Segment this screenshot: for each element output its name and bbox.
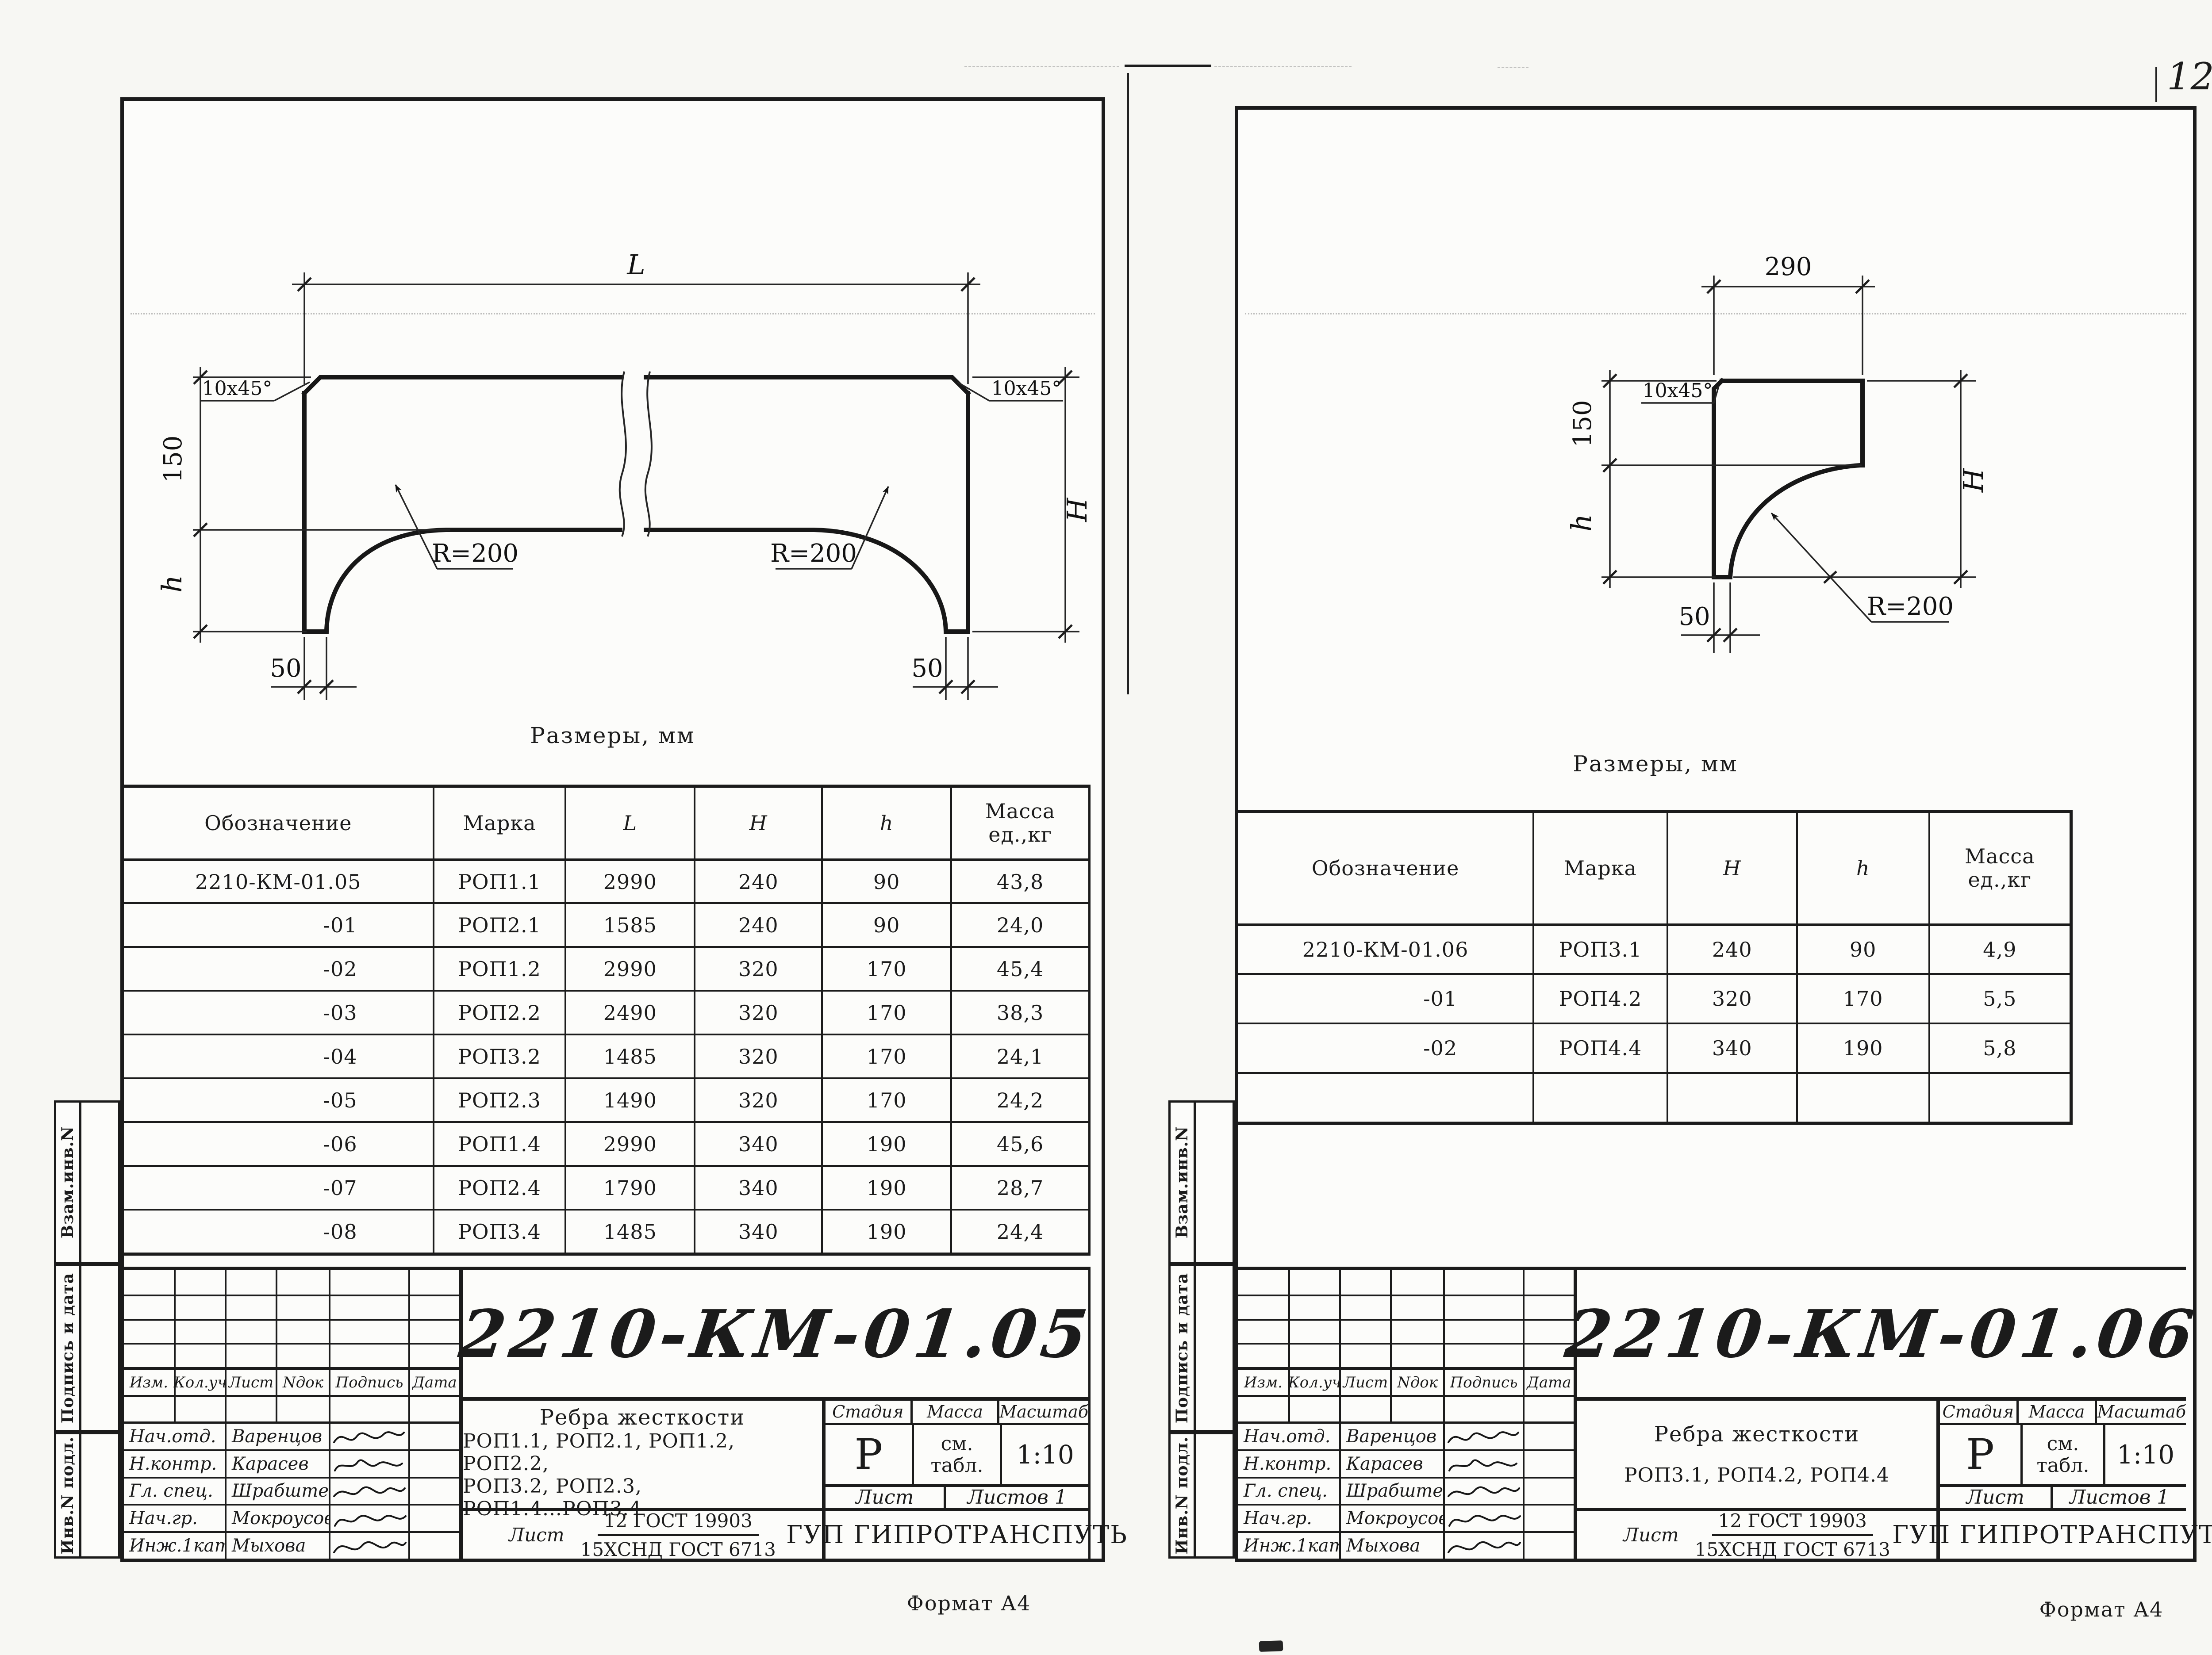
material-spec: 12 ГОСТ 19903 15ХСНД ГОСТ 6713 xyxy=(1695,1510,1890,1560)
cell-mark: РОП3.2 xyxy=(433,1034,565,1077)
cell-empty xyxy=(1796,1072,1928,1122)
sheets-label: Листов 1 xyxy=(2051,1487,2186,1508)
signature xyxy=(1443,1424,1523,1449)
cell-mass: 38,3 xyxy=(950,990,1088,1034)
cell-L: 2990 xyxy=(565,946,694,990)
rib-profile-drawing-left: L 150 h H 50 50 R=200 R=200 10x45° xyxy=(158,251,1087,720)
signature xyxy=(1443,1533,1523,1559)
material-bottom: 15ХСНД ГОСТ 6713 xyxy=(580,1536,776,1560)
break-line xyxy=(645,372,652,536)
material-top: 12 ГОСТ 19903 xyxy=(598,1510,759,1536)
cell-h: 90 xyxy=(1796,923,1928,973)
margin-box-vzam: Взам.инв.N xyxy=(1168,1100,1235,1264)
cell-mark: РОП3.1 xyxy=(1532,923,1667,973)
margin-box-inv: Инв.N подл. xyxy=(54,1432,120,1559)
mass-value: см.табл. xyxy=(912,1425,1000,1484)
doc-title: Ребра жесткости xyxy=(1654,1422,1860,1447)
cell-mass: 28,7 xyxy=(950,1165,1088,1209)
title-block: 2210-КМ-01.05 Ребра жесткости РОП1.1, РО… xyxy=(124,1267,1091,1559)
scan-fold-mark xyxy=(1214,66,1352,67)
radius-label-left: R=200 xyxy=(432,539,518,568)
scan-fold-mark xyxy=(964,66,1119,67)
scan-smudge xyxy=(1259,1640,1283,1652)
cell-designation: -03 xyxy=(124,990,433,1034)
cell-mark: РОП4.2 xyxy=(1532,973,1667,1023)
cell-H: 240 xyxy=(694,902,821,946)
col-header-mark: Марка xyxy=(1532,813,1667,923)
sheet-divider-line xyxy=(1127,73,1129,694)
cell-mark: РОП2.4 xyxy=(433,1165,565,1209)
cell-mass: 45,4 xyxy=(950,946,1088,990)
signature-rows: Нач.отд.Варенцов Н.контр.Карасев Гл. спе… xyxy=(1238,1424,1574,1559)
signature-rows: Нач.отд.Варенцов Н.контр.Карасев Гл. спе… xyxy=(124,1424,459,1559)
scale-value: 1:10 xyxy=(1000,1425,1088,1484)
part-outline xyxy=(1714,381,1863,577)
cell-H: 320 xyxy=(694,1034,821,1077)
margin-box-vzam: Взам.инв.N xyxy=(54,1100,120,1264)
sheet-right: 290 150 h H 50 R=200 10x45° Размеры, мм … xyxy=(1235,106,2197,1562)
sheet-label: Лист xyxy=(1940,1487,2051,1508)
doc-number-box: 2210-КМ-01.05 xyxy=(459,1270,1088,1401)
cell-L: 2490 xyxy=(565,990,694,1034)
col-header-mass: Массаед.,кг xyxy=(1928,813,2070,923)
col-header-H: H xyxy=(694,788,821,858)
cell-designation: -06 xyxy=(124,1121,433,1165)
signature xyxy=(329,1533,408,1559)
signature xyxy=(1443,1506,1523,1531)
dimensions-table: Обозначение Марка L H h Массаед.,кг 2210… xyxy=(124,785,1091,1256)
cell-mass: 24,2 xyxy=(950,1077,1088,1121)
chamfer-label-left: 10x45° xyxy=(202,377,273,400)
col-header-H: H xyxy=(1667,813,1796,923)
cell-H: 340 xyxy=(694,1209,821,1253)
cell-mass: 5,5 xyxy=(1928,973,2070,1023)
dim-length-label: L xyxy=(626,251,645,281)
scanned-drawing-page: { "page": { "number": "12", "format": "Ф… xyxy=(0,0,2212,1655)
title-block: 2210-КМ-01.06 Ребра жесткости РОП3.1, РО… xyxy=(1238,1267,2186,1559)
stage-value: Р xyxy=(826,1425,912,1484)
cell-L: 2990 xyxy=(565,1121,694,1165)
dim-150-label: 150 xyxy=(159,436,188,483)
signature xyxy=(329,1424,408,1449)
cell-h: 190 xyxy=(821,1121,950,1165)
material-bottom: 15ХСНД ГОСТ 6713 xyxy=(1695,1536,1890,1560)
dim-h-label: h xyxy=(1565,514,1598,532)
sheets-label: Листов 1 xyxy=(944,1487,1088,1508)
format-label-left: Формат А4 xyxy=(902,1591,1035,1615)
company-name: ГУП ГИПРОТРАНСПУТЬ xyxy=(786,1521,1128,1549)
cell-mark: РОП1.4 xyxy=(433,1121,565,1165)
cell-mass: 24,0 xyxy=(950,902,1088,946)
cell-h: 190 xyxy=(821,1165,950,1209)
table-caption: Размеры, мм xyxy=(1238,751,2073,777)
revision-empty-row xyxy=(124,1397,459,1424)
doc-number: 2210-КМ-01.06 xyxy=(1561,1295,2202,1372)
chamfer-label: 10x45° xyxy=(1643,379,1713,402)
cell-empty xyxy=(1532,1072,1667,1122)
signature xyxy=(1443,1451,1523,1477)
page-number-tick xyxy=(2155,67,2157,102)
scale-value: 1:10 xyxy=(2103,1425,2186,1484)
col-header-mark: Марка xyxy=(433,788,565,858)
doc-number-box: 2210-КМ-01.06 xyxy=(1574,1270,2186,1401)
cell-h: 170 xyxy=(821,990,950,1034)
dim-foot-left-label: 50 xyxy=(270,654,301,683)
col-header-L: L xyxy=(565,788,694,858)
page-number: 12 xyxy=(2167,55,2212,98)
col-header-mass: Массаед.,кг xyxy=(950,788,1088,858)
doc-number: 2210-КМ-01.05 xyxy=(455,1295,1096,1372)
doc-subtitle: РОП1.1, РОП2.1, РОП1.2, РОП2.2, xyxy=(463,1430,822,1475)
cell-designation: 2210-КМ-01.05 xyxy=(124,858,433,902)
doc-title: Ребра жесткости xyxy=(540,1405,745,1430)
part-left-profile xyxy=(304,393,620,632)
cell-h: 170 xyxy=(1796,973,1928,1023)
scan-fold-mark xyxy=(1498,67,1528,68)
cell-L: 1790 xyxy=(565,1165,694,1209)
dim-150-label: 150 xyxy=(1568,400,1597,448)
part-top-edge-right xyxy=(646,377,968,393)
cell-H: 320 xyxy=(1667,973,1796,1023)
cell-designation: -01 xyxy=(124,902,433,946)
cell-mass: 4,9 xyxy=(1928,923,2070,973)
cell-designation: -05 xyxy=(124,1077,433,1121)
rib-profile-drawing-right: 290 150 h H 50 R=200 10x45° xyxy=(1552,251,2105,667)
material-spec: 12 ГОСТ 19903 15ХСНД ГОСТ 6713 xyxy=(580,1510,776,1560)
dim-width-label: 290 xyxy=(1765,253,1812,281)
cell-mass: 43,8 xyxy=(950,858,1088,902)
revision-grid xyxy=(124,1270,459,1370)
mass-value: см.табл. xyxy=(2020,1425,2103,1484)
cell-H: 240 xyxy=(694,858,821,902)
cell-H: 320 xyxy=(694,1077,821,1121)
cell-mark: РОП4.4 xyxy=(1532,1023,1667,1072)
signature xyxy=(1443,1479,1523,1504)
cell-H: 340 xyxy=(694,1121,821,1165)
chamfer-label-right: 10x45° xyxy=(991,377,1062,400)
cell-h: 170 xyxy=(821,1034,950,1077)
sheet-label: Лист xyxy=(826,1487,944,1508)
dim-foot-label: 50 xyxy=(1678,602,1710,631)
cell-designation: -04 xyxy=(124,1034,433,1077)
material-box: Лист 12 ГОСТ 19903 15ХСНД ГОСТ 6713 xyxy=(459,1511,822,1559)
table-caption: Размеры, мм xyxy=(124,723,1102,748)
col-header-designation: Обозначение xyxy=(1238,813,1532,923)
cell-designation: -02 xyxy=(1238,1023,1532,1072)
cell-H: 240 xyxy=(1667,923,1796,973)
cell-mass: 24,4 xyxy=(950,1209,1088,1253)
radius-label: R=200 xyxy=(1867,592,1954,621)
signature xyxy=(329,1479,408,1504)
cell-L: 1490 xyxy=(565,1077,694,1121)
cell-H: 340 xyxy=(694,1165,821,1209)
cell-h: 190 xyxy=(821,1209,950,1253)
margin-box-podpis: Подпись и дата xyxy=(1168,1264,1235,1432)
doc-title-box: Ребра жесткости РОП3.1, РОП4.2, РОП4.4 xyxy=(1574,1401,1936,1511)
scale-header: Масштаб xyxy=(2095,1401,2186,1423)
cell-L: 2990 xyxy=(565,858,694,902)
signature xyxy=(329,1506,408,1531)
cell-mark: РОП1.1 xyxy=(433,858,565,902)
col-header-designation: Обозначение xyxy=(124,788,433,858)
cell-mass: 24,1 xyxy=(950,1034,1088,1077)
col-header-h: h xyxy=(821,788,950,858)
scale-header: Масштаб xyxy=(997,1401,1088,1423)
material-top: 12 ГОСТ 19903 xyxy=(1712,1510,1873,1536)
cell-H: 340 xyxy=(1667,1023,1796,1072)
material-sheet-label: Лист xyxy=(1623,1524,1678,1546)
cell-designation: 2210-КМ-01.06 xyxy=(1238,923,1532,973)
cell-designation: -01 xyxy=(1238,973,1532,1023)
sheet-left: L 150 h H 50 50 R=200 R=200 10x45° xyxy=(120,97,1105,1562)
margin-box-inv: Инв.N подл. xyxy=(1168,1432,1235,1559)
dim-H-label: H xyxy=(1957,467,1989,493)
cell-h: 190 xyxy=(1796,1023,1928,1072)
cell-mark: РОП1.2 xyxy=(433,946,565,990)
cell-designation: -08 xyxy=(124,1209,433,1253)
dim-h-label: h xyxy=(158,575,188,593)
doc-title-box: Ребра жесткости РОП1.1, РОП2.1, РОП1.2, … xyxy=(459,1401,822,1511)
part-top-edge-left xyxy=(304,377,620,393)
cell-h: 170 xyxy=(821,946,950,990)
doc-subtitle: РОП3.1, РОП4.2, РОП4.4 xyxy=(1624,1464,1889,1486)
cell-designation: -07 xyxy=(124,1165,433,1209)
stage-header: Стадия xyxy=(1940,1401,2016,1423)
scan-fold-mark xyxy=(1125,65,1211,67)
cell-mark: РОП3.4 xyxy=(433,1209,565,1253)
revision-header-row: Изм.Кол.уч ЛистNдок ПодписьДата xyxy=(124,1370,459,1397)
cell-mark: РОП2.3 xyxy=(433,1077,565,1121)
cell-L: 1585 xyxy=(565,902,694,946)
revision-header-row: Изм.Кол.уч ЛистNдок ПодписьДата xyxy=(1238,1370,1574,1397)
cell-H: 320 xyxy=(694,946,821,990)
material-box: Лист 12 ГОСТ 19903 15ХСНД ГОСТ 6713 xyxy=(1574,1511,1936,1559)
cell-mass: 45,6 xyxy=(950,1121,1088,1165)
cell-designation: -02 xyxy=(124,946,433,990)
stage-mass-scale-box: Стадия Масса Масштаб Р см.табл. 1:10 Лис… xyxy=(1936,1401,2186,1559)
revision-empty-row xyxy=(1238,1397,1574,1424)
dimensions-table: Обозначение Марка H h Массаед.,кг 2210-К… xyxy=(1238,810,2073,1125)
cell-h: 90 xyxy=(821,858,950,902)
dim-H-label: H xyxy=(1061,497,1087,522)
part-right-profile xyxy=(646,393,968,632)
mass-header: Масса xyxy=(2016,1401,2095,1423)
margin-box-podpis: Подпись и дата xyxy=(54,1264,120,1432)
cell-L: 1485 xyxy=(565,1034,694,1077)
radius-label-right: R=200 xyxy=(770,539,857,568)
revision-grid xyxy=(1238,1270,1574,1370)
cell-L: 1485 xyxy=(565,1209,694,1253)
cell-H: 320 xyxy=(694,990,821,1034)
cell-empty xyxy=(1928,1072,2070,1122)
cell-h: 90 xyxy=(821,902,950,946)
cell-mass: 5,8 xyxy=(1928,1023,2070,1072)
stage-header: Стадия xyxy=(826,1401,910,1423)
cell-mark: РОП2.1 xyxy=(433,902,565,946)
company-name: ГУП ГИПРОТРАНСПУТЬ xyxy=(1892,1521,2212,1549)
stage-mass-scale-box: Стадия Масса Масштаб Р см.табл. 1:10 Лис… xyxy=(822,1401,1088,1559)
cell-empty xyxy=(1667,1072,1796,1122)
col-header-h: h xyxy=(1796,813,1928,923)
break-line xyxy=(620,372,626,536)
cell-mark: РОП2.2 xyxy=(433,990,565,1034)
cell-h: 170 xyxy=(821,1077,950,1121)
cell-empty xyxy=(1238,1072,1532,1122)
dim-foot-right-label: 50 xyxy=(911,654,943,683)
format-label-right: Формат А4 xyxy=(2035,1598,2168,1621)
material-sheet-label: Лист xyxy=(509,1524,564,1546)
stage-value: Р xyxy=(1940,1425,2020,1484)
mass-header: Масса xyxy=(910,1401,998,1423)
signature xyxy=(329,1451,408,1477)
